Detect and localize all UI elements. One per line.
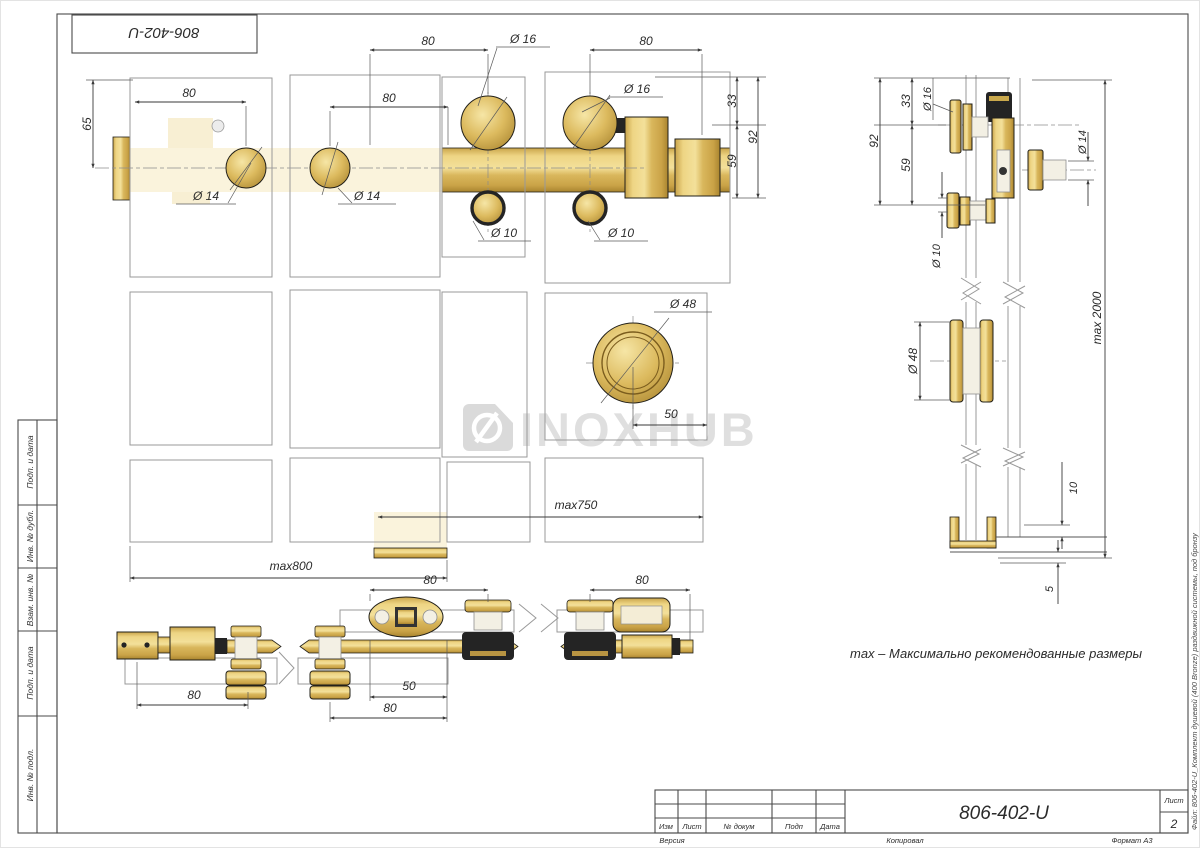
view-bottom-plan: 80 80 80 50 80 xyxy=(117,573,703,722)
roller-48-side xyxy=(930,320,1006,402)
dim-80-r1b: 80 xyxy=(382,91,396,105)
watermark: INOXHUB xyxy=(463,403,758,456)
dim-dia48-side: Ø 48 xyxy=(906,348,920,375)
tb-sheet-label: Лист xyxy=(1163,796,1183,805)
dim-dia16-side: Ø 16 xyxy=(922,86,934,112)
guide-wheel-10-1 xyxy=(472,192,504,224)
side-pin xyxy=(1043,160,1066,180)
dim-dia10-1: Ø 10 xyxy=(490,226,517,240)
roller-stack-a1 xyxy=(226,626,266,699)
dim-dia48-face: Ø 48 xyxy=(669,297,696,311)
guide-wheel-10-2 xyxy=(574,192,606,224)
tb-format: Формат А3 xyxy=(1111,836,1153,845)
dim-80-plan-1: 80 xyxy=(423,573,437,587)
margin-label-inv-dubl: Инв. № дубл. xyxy=(25,510,35,562)
track-block-1 xyxy=(625,117,668,198)
dim-80-top-1: 80 xyxy=(421,34,435,48)
dim-80-top-2: 80 xyxy=(639,34,653,48)
roller-16-2 xyxy=(563,96,617,150)
left-margin-table: Подп. и дата Инв. № дубл. Взам. инв. № П… xyxy=(18,420,57,833)
drawing-canvas: Подп. и дата Инв. № дубл. Взам. инв. № П… xyxy=(0,0,1200,848)
dim-max800: max800 xyxy=(270,559,313,573)
margin-label-podp-data-1: Подп. и дата xyxy=(25,435,35,488)
margin-label-vzam-inv: Взам. инв. № xyxy=(25,574,35,627)
dim-dia14-2: Ø 14 xyxy=(353,189,380,203)
dim-max2000: max 2000 xyxy=(1090,291,1104,344)
roller-stack-a2 xyxy=(310,626,350,699)
dim-50-face: 50 xyxy=(664,407,678,421)
watermark-text: INOXHUB xyxy=(520,403,758,456)
glass-panel-r3a xyxy=(130,460,272,542)
track-end-cap xyxy=(113,137,130,200)
roller-16-1 xyxy=(461,96,515,150)
dim-10-side: 10 xyxy=(1068,481,1080,494)
view-side-section: 92 33 59 Ø 16 Ø 14 Ø 10 Ø 48 max 2000 10… xyxy=(867,75,1112,604)
tb-col-podp: Подп xyxy=(785,822,803,831)
dim-80-plan-2: 80 xyxy=(635,573,649,587)
dim-33-side: 33 xyxy=(899,94,913,108)
stamp-doc-number: 806-402-U xyxy=(128,24,199,41)
tb-sheet-number: 2 xyxy=(1170,817,1178,831)
floor-guide-strip xyxy=(374,548,447,558)
dim-92-side: 92 xyxy=(867,134,881,148)
dim-dia16-1: Ø 16 xyxy=(509,32,536,46)
tb-col-izm: Изм xyxy=(659,822,673,831)
dim-80-plan-left: 80 xyxy=(187,688,201,702)
drawing-sheet: Подп. и дата Инв. № дубл. Взам. инв. № П… xyxy=(0,0,1200,848)
dim-5-side: 5 xyxy=(1044,585,1056,592)
inoxhub-logo-icon xyxy=(463,404,513,451)
dim-dia10-side: Ø 10 xyxy=(931,243,943,269)
glass-panel-r2a xyxy=(130,292,272,445)
tb-col-list: Лист xyxy=(681,822,701,831)
view-top-track xyxy=(95,72,730,283)
dim-50-plan: 50 xyxy=(402,679,416,693)
dim-dia16-2: Ø 16 xyxy=(623,82,650,96)
file-note: Файл: 806-402-U_Комплект душевой (400 Br… xyxy=(1190,532,1199,830)
tb-col-data: Дата xyxy=(819,822,840,831)
dim-dia14-1: Ø 14 xyxy=(192,189,219,203)
floor-guide-side xyxy=(950,517,1107,552)
knob xyxy=(212,120,224,132)
tb-col-docnum: № докум xyxy=(724,822,755,831)
dim-59-top: 59 xyxy=(725,154,739,168)
rotated-stamp: 806-402-U xyxy=(72,15,257,53)
dim-dia14-side: Ø 14 xyxy=(1077,130,1089,155)
dim-59-side: 59 xyxy=(899,158,913,172)
dim-dia10-2: Ø 10 xyxy=(607,226,634,240)
track-block-2 xyxy=(675,139,720,196)
rod-block xyxy=(170,627,215,660)
roller-carriage-side xyxy=(938,92,1096,228)
dim-92-top: 92 xyxy=(746,130,760,144)
glass-tint-band xyxy=(130,148,445,192)
tb-version: Версия xyxy=(659,836,684,845)
side-pin-flange xyxy=(1028,150,1043,190)
dim-65: 65 xyxy=(80,117,94,131)
dim-80-r1a: 80 xyxy=(182,86,196,100)
tb-doc-number: 806-402-U xyxy=(959,803,1049,824)
title-block: Изм Лист № докум Подп Дата 806-402-U Лис… xyxy=(655,790,1188,845)
view-bottom-panels: max750 max800 xyxy=(130,458,703,582)
glass-panel-r2b xyxy=(290,290,440,448)
max-note: max – Максимально рекомендованные размер… xyxy=(850,646,1143,661)
tb-copied: Копировал xyxy=(886,836,924,845)
margin-label-podp-data-2: Подп. и дата xyxy=(25,646,35,699)
dim-33-top: 33 xyxy=(725,94,739,108)
margin-label-inv-podl: Инв. № подл. xyxy=(25,749,35,802)
dim-max750: max750 xyxy=(555,498,598,512)
dim-80-plan-mid: 80 xyxy=(383,701,397,715)
glass-panel-r3c xyxy=(447,462,530,542)
